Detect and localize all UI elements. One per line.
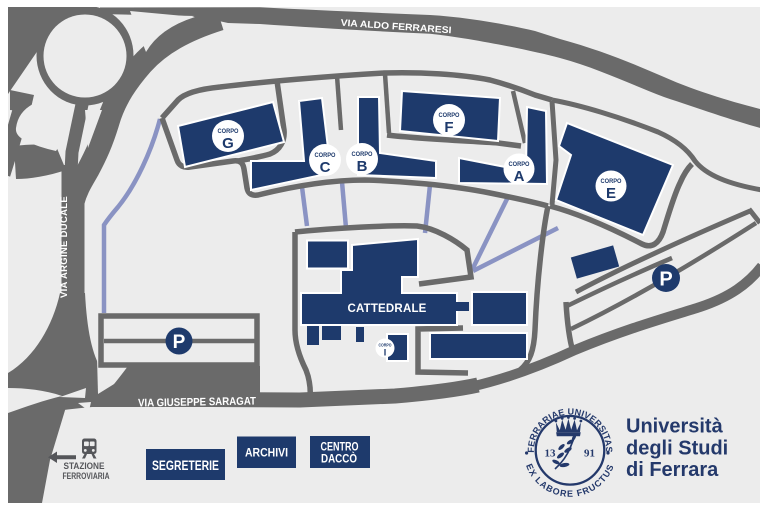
- svg-text:CORPO: CORPO: [352, 151, 373, 158]
- svg-text:CATTEDRALE: CATTEDRALE: [347, 303, 426, 315]
- svg-text:CORPO: CORPO: [218, 128, 239, 135]
- svg-text:E: E: [606, 185, 616, 202]
- svg-text:Università: Università: [626, 416, 724, 438]
- svg-text:13: 13: [545, 448, 557, 460]
- svg-text:C: C: [320, 159, 331, 176]
- svg-text:CORPO: CORPO: [509, 161, 530, 168]
- svg-text:G: G: [222, 135, 234, 152]
- svg-text:degli Studi: degli Studi: [626, 438, 728, 460]
- svg-text:91: 91: [584, 448, 595, 460]
- svg-text:P: P: [173, 332, 186, 353]
- svg-text:STAZIONE: STAZIONE: [64, 461, 105, 471]
- svg-text:I: I: [384, 348, 387, 358]
- svg-text:CENTRO: CENTRO: [321, 442, 359, 454]
- svg-text:CORPO: CORPO: [601, 178, 622, 185]
- svg-text:CORPO: CORPO: [315, 152, 336, 159]
- svg-text:FERROVIARIA: FERROVIARIA: [63, 471, 110, 481]
- svg-text:F: F: [444, 119, 453, 136]
- svg-text:di Ferrara: di Ferrara: [626, 459, 719, 481]
- svg-text:B: B: [357, 158, 368, 175]
- svg-text:ARCHIVI: ARCHIVI: [245, 446, 288, 460]
- svg-text:VIA GIUSEPPE SARAGAT: VIA GIUSEPPE SARAGAT: [138, 395, 256, 409]
- svg-text:P: P: [659, 269, 672, 291]
- svg-text:VIA ARGINE DUCALE: VIA ARGINE DUCALE: [59, 196, 70, 298]
- svg-text:CORPO: CORPO: [439, 112, 460, 119]
- svg-text:DACCÒ: DACCÒ: [321, 453, 357, 466]
- svg-text:SEGRETERIE: SEGRETERIE: [152, 458, 219, 473]
- svg-text:A: A: [514, 168, 525, 185]
